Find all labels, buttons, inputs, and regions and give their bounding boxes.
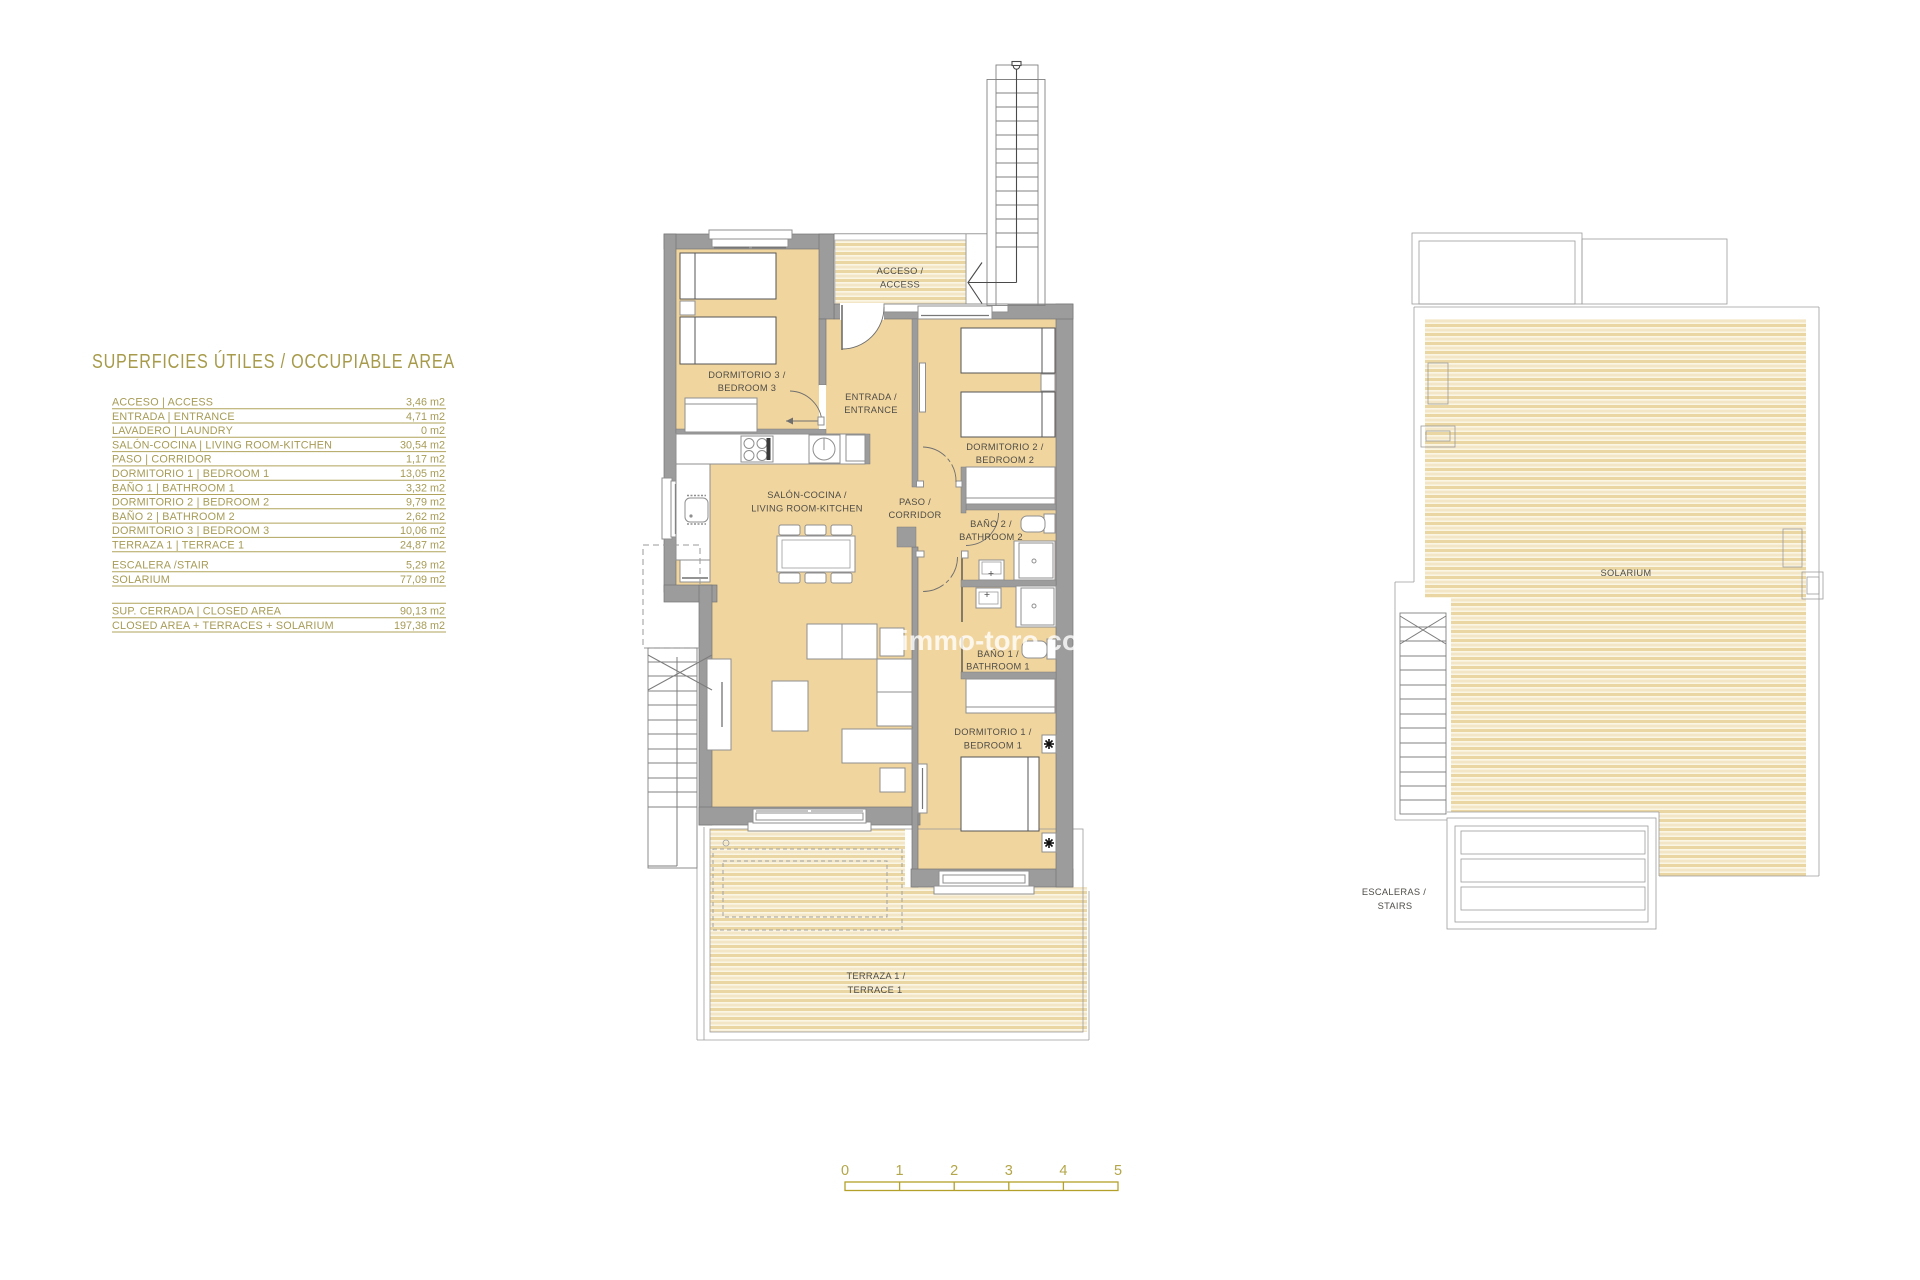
svg-text:SUPERFICIES ÚTILES / OCCUPIABL: SUPERFICIES ÚTILES / OCCUPIABLE AREA <box>92 350 455 373</box>
svg-text:BAÑO 1 | BATHROOM 1: BAÑO 1 | BATHROOM 1 <box>112 481 235 494</box>
svg-text:4,71 m2: 4,71 m2 <box>406 411 445 423</box>
svg-text:DORMITORIO 3 /: DORMITORIO 3 / <box>708 370 785 380</box>
svg-text:1: 1 <box>896 1163 904 1179</box>
svg-text:9,79 m2: 9,79 m2 <box>406 497 445 509</box>
svg-text:BATHROOM 2: BATHROOM 2 <box>959 532 1023 542</box>
svg-text:5: 5 <box>1114 1163 1122 1179</box>
svg-text:BAÑO 2 | BATHROOM 2: BAÑO 2 | BATHROOM 2 <box>112 510 235 523</box>
svg-text:ESCALERAS /: ESCALERAS / <box>1362 887 1426 897</box>
svg-text:SUP. CERRADA | CLOSED AREA: SUP. CERRADA | CLOSED AREA <box>112 606 282 618</box>
svg-text:ESCALERA /STAIR: ESCALERA /STAIR <box>112 560 209 572</box>
svg-text:BATHROOM 1: BATHROOM 1 <box>966 662 1030 672</box>
svg-text:1,17 m2: 1,17 m2 <box>406 454 445 466</box>
svg-text:30,54 m2: 30,54 m2 <box>400 439 445 451</box>
svg-text:TERRACE 1: TERRACE 1 <box>848 985 903 995</box>
svg-text:BEDROOM 2: BEDROOM 2 <box>976 455 1035 465</box>
svg-text:SALÓN-COCINA /: SALÓN-COCINA / <box>767 490 847 500</box>
svg-text:4: 4 <box>1059 1163 1067 1179</box>
svg-text:0: 0 <box>841 1163 849 1179</box>
svg-text:DORMITORIO 3 | BEDROOM 3: DORMITORIO 3 | BEDROOM 3 <box>112 525 269 537</box>
svg-text:2,62 m2: 2,62 m2 <box>406 511 445 523</box>
svg-text:STAIRS: STAIRS <box>1378 901 1413 911</box>
svg-text:SALÓN-COCINA | LIVING ROOM-KIT: SALÓN-COCINA | LIVING ROOM-KITCHEN <box>112 438 332 451</box>
svg-text:immo-toro.co: immo-toro.co <box>901 625 1079 656</box>
svg-text:77,09 m2: 77,09 m2 <box>400 574 445 586</box>
svg-text:DORMITORIO 2 /: DORMITORIO 2 / <box>966 442 1043 452</box>
svg-text:CLOSED AREA + TERRACES + SOLAR: CLOSED AREA + TERRACES + SOLARIUM <box>112 620 334 632</box>
svg-text:5,29 m2: 5,29 m2 <box>406 560 445 572</box>
svg-text:LIVING ROOM-KITCHEN: LIVING ROOM-KITCHEN <box>751 504 863 514</box>
svg-text:LAVADERO | LAUNDRY: LAVADERO | LAUNDRY <box>112 425 233 437</box>
svg-text:SOLARIUM: SOLARIUM <box>112 574 170 586</box>
svg-text:BEDROOM 1: BEDROOM 1 <box>964 741 1023 751</box>
svg-text:PASO /: PASO / <box>899 497 931 507</box>
svg-text:3,32 m2: 3,32 m2 <box>406 482 445 494</box>
svg-text:ACCESO /: ACCESO / <box>877 266 924 276</box>
svg-text:ENTRANCE: ENTRANCE <box>844 405 898 415</box>
svg-text:90,13 m2: 90,13 m2 <box>400 606 445 618</box>
svg-text:BAÑO 2 /: BAÑO 2 / <box>970 519 1012 529</box>
svg-text:3,46 m2: 3,46 m2 <box>406 397 445 409</box>
svg-text:10,06 m2: 10,06 m2 <box>400 525 445 537</box>
svg-text:BEDROOM 3: BEDROOM 3 <box>718 383 777 393</box>
svg-text:ACCESO | ACCESS: ACCESO | ACCESS <box>112 397 213 409</box>
svg-text:24,87 m2: 24,87 m2 <box>400 540 445 552</box>
svg-text:ENTRADA | ENTRANCE: ENTRADA | ENTRANCE <box>112 411 235 423</box>
svg-text:2: 2 <box>950 1163 958 1179</box>
svg-text:197,38 m2: 197,38 m2 <box>394 620 445 632</box>
svg-text:DORMITORIO 1 /: DORMITORIO 1 / <box>954 727 1031 737</box>
svg-text:SOLARIUM: SOLARIUM <box>1601 568 1652 578</box>
svg-text:13,05 m2: 13,05 m2 <box>400 468 445 480</box>
svg-text:3: 3 <box>1005 1163 1013 1179</box>
svg-text:DORMITORIO 1 | BEDROOM 1: DORMITORIO 1 | BEDROOM 1 <box>112 468 269 480</box>
svg-text:DORMITORIO 2 | BEDROOM 2: DORMITORIO 2 | BEDROOM 2 <box>112 497 269 509</box>
svg-text:CORRIDOR: CORRIDOR <box>888 510 941 520</box>
svg-text:TERRAZA 1 | TERRACE 1: TERRAZA 1 | TERRACE 1 <box>112 540 244 552</box>
svg-text:ACCESS: ACCESS <box>880 280 920 290</box>
svg-text:PASO | CORRIDOR: PASO | CORRIDOR <box>112 454 212 466</box>
svg-text:0 m2: 0 m2 <box>421 425 445 437</box>
svg-text:TERRAZA 1 /: TERRAZA 1 / <box>846 971 905 981</box>
svg-text:ENTRADA /: ENTRADA / <box>845 392 897 402</box>
